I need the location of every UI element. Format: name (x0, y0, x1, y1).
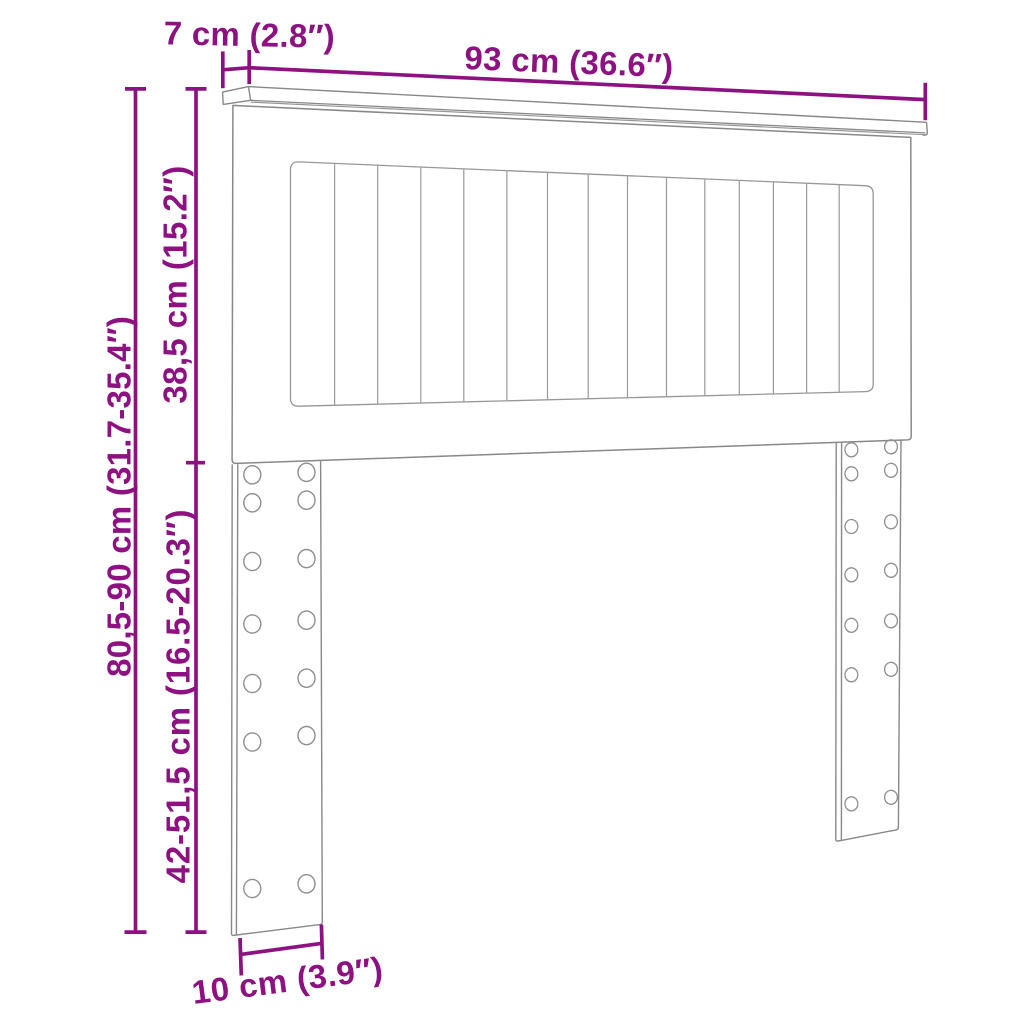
svg-text:42-51,5 cm (16.5-20.3″): 42-51,5 cm (16.5-20.3″) (160, 509, 197, 884)
svg-text:7 cm (2.8″): 7 cm (2.8″) (163, 14, 335, 55)
svg-text:80,5-90 cm (31.7-35.4″): 80,5-90 cm (31.7-35.4″) (101, 316, 138, 677)
svg-text:38,5 cm (15.2″): 38,5 cm (15.2″) (157, 165, 194, 403)
